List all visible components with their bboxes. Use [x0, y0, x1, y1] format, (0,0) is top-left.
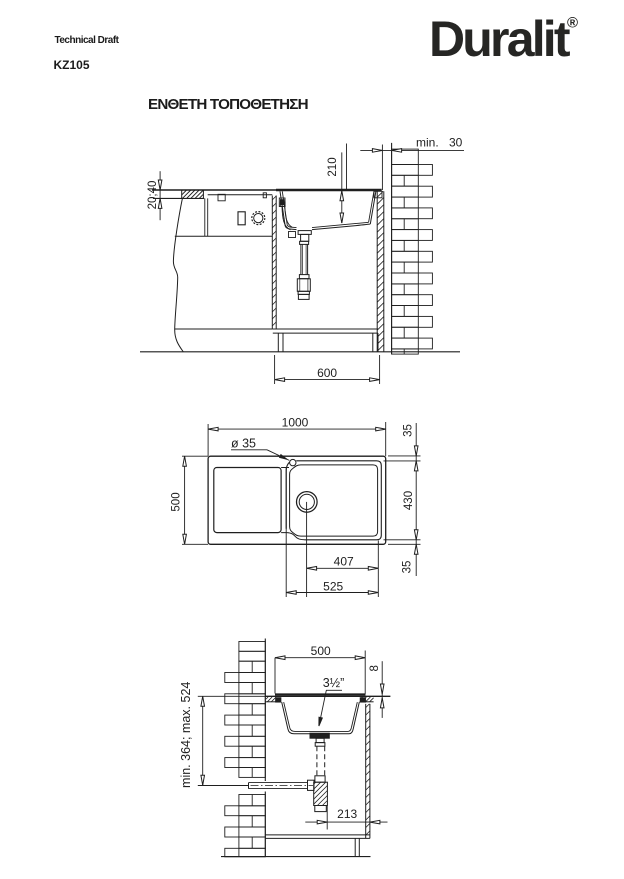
svg-text:20;40: 20;40 — [147, 181, 159, 210]
svg-text:min. 364; max. 524: min. 364; max. 524 — [179, 682, 193, 788]
svg-text:500: 500 — [311, 644, 331, 658]
svg-text:3½”: 3½” — [323, 676, 345, 690]
svg-text:430: 430 — [403, 491, 415, 510]
svg-text:407: 407 — [334, 555, 354, 569]
svg-text:ø 35: ø 35 — [231, 437, 256, 451]
svg-text:210: 210 — [327, 157, 339, 176]
svg-text:Duralit: Duralit — [429, 11, 571, 67]
svg-text:KZ105: KZ105 — [54, 58, 90, 72]
svg-text:600: 600 — [317, 366, 337, 380]
svg-text:min.: min. — [416, 136, 439, 150]
svg-text:35: 35 — [403, 424, 415, 437]
svg-text:ΕΝΘΕΤΗ ΤΟΠΟΘΕΤΗΣΗ: ΕΝΘΕΤΗ ΤΟΠΟΘΕΤΗΣΗ — [148, 96, 308, 113]
svg-text:8: 8 — [369, 665, 381, 671]
svg-text:525: 525 — [323, 580, 343, 594]
svg-text:1000: 1000 — [282, 416, 309, 430]
svg-text:500: 500 — [171, 492, 183, 511]
svg-text:®: ® — [567, 15, 578, 32]
svg-text:30: 30 — [449, 136, 463, 150]
svg-text:Technical Draft: Technical Draft — [55, 35, 120, 46]
svg-text:213: 213 — [337, 807, 357, 821]
svg-text:35: 35 — [402, 561, 414, 574]
